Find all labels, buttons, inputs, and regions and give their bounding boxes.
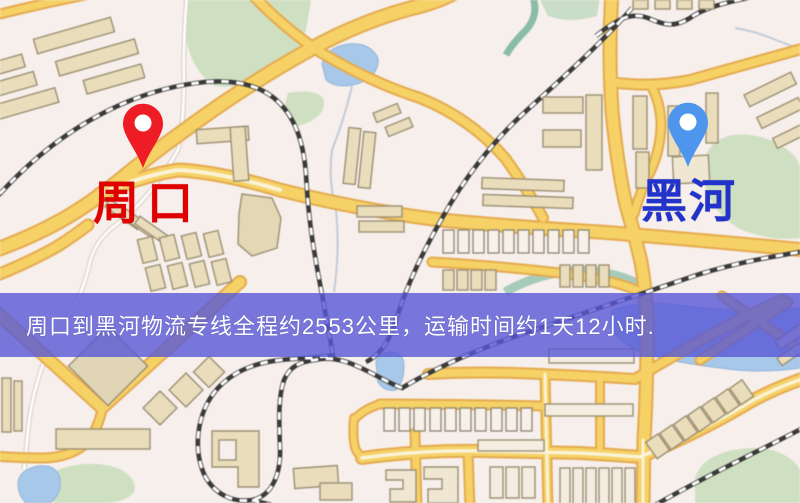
map-canvas[interactable]: 周口到黑河物流专线全程约2553公里，运输时间约1天12小时. 周口 黑河: [0, 0, 800, 503]
pin-hole: [135, 115, 152, 132]
map-background: [0, 0, 800, 503]
heihe-label: 黑河: [641, 178, 737, 224]
banner-text: 周口到黑河物流专线全程约2553公里，运输时间约1天12小时.: [0, 309, 655, 341]
zhoukou-marker[interactable]: [120, 100, 166, 170]
pond-bottom-left: [18, 466, 60, 503]
route-banner: 周口到黑河物流专线全程约2553公里，运输时间约1天12小时.: [0, 293, 800, 357]
pin-icon: [123, 104, 163, 168]
pin-icon: [668, 103, 708, 167]
pin-hole: [680, 114, 697, 131]
zhoukou-label: 周口: [93, 180, 201, 226]
heihe-marker[interactable]: [665, 99, 711, 169]
